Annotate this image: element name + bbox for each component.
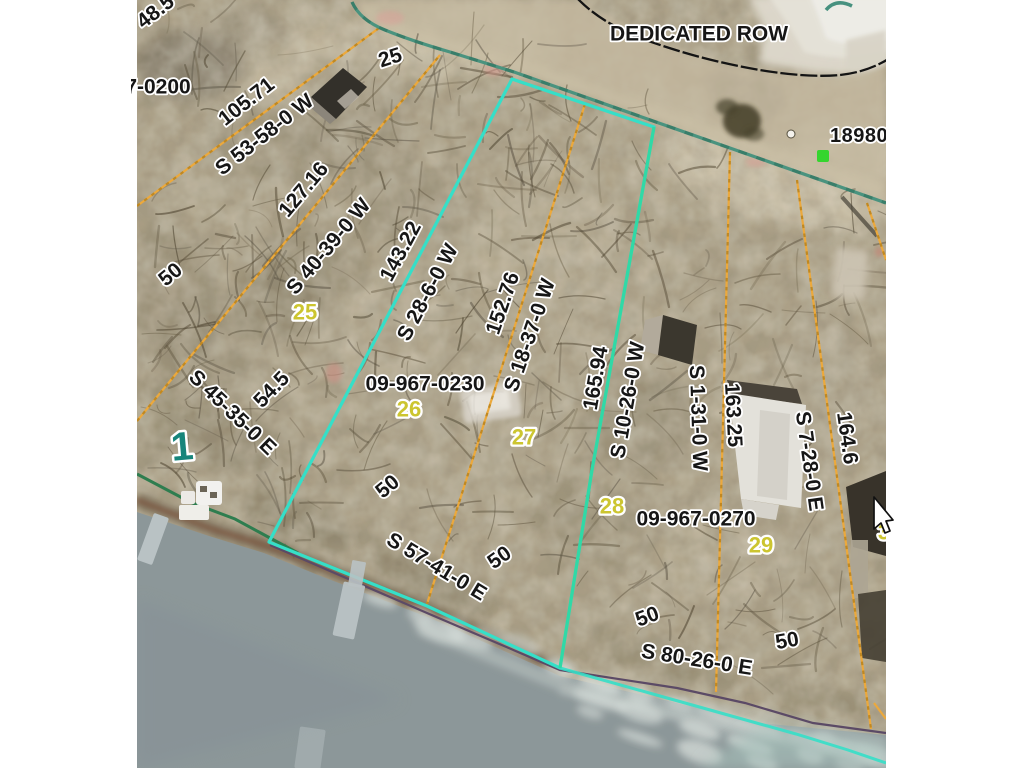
svg-text:7-0200: 7-0200 xyxy=(125,75,190,98)
svg-text:09-967-0270: 09-967-0270 xyxy=(636,507,755,530)
svg-text:1: 1 xyxy=(169,424,195,470)
svg-text:50: 50 xyxy=(774,627,801,654)
svg-text:28: 28 xyxy=(600,494,624,519)
svg-text:S 1-31-0 W: S 1-31-0 W xyxy=(685,365,712,472)
svg-text:26: 26 xyxy=(397,397,421,422)
svg-text:09-967-0230: 09-967-0230 xyxy=(365,372,484,395)
svg-text:29: 29 xyxy=(749,533,773,558)
svg-text:25: 25 xyxy=(293,300,317,325)
svg-text:27: 27 xyxy=(512,425,536,450)
svg-text:163.25: 163.25 xyxy=(720,382,746,448)
svg-text:DEDICATED ROW: DEDICATED ROW xyxy=(610,22,788,45)
